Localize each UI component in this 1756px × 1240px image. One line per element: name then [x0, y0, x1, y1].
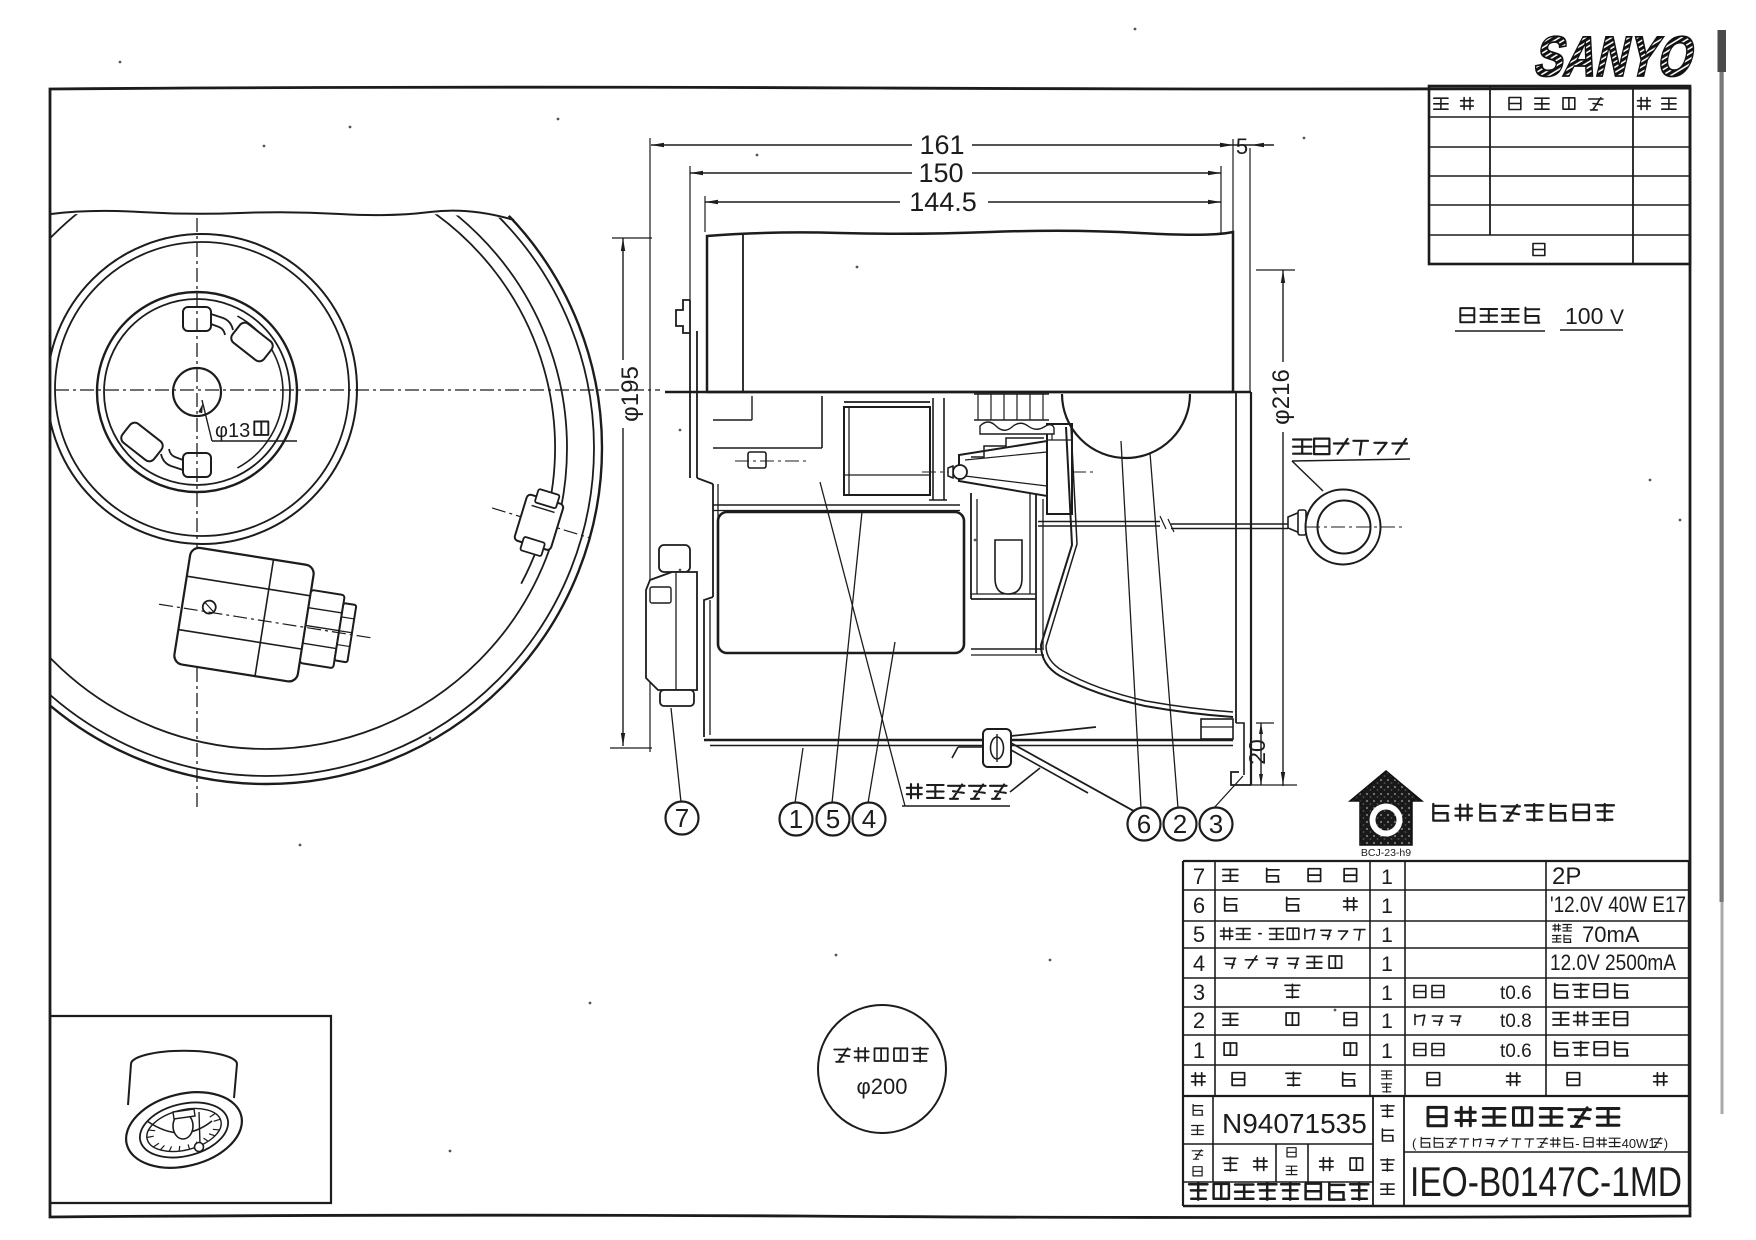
svg-text:20: 20: [1244, 739, 1270, 765]
svg-text:5: 5: [1193, 922, 1205, 947]
svg-text:): ): [1664, 1136, 1668, 1151]
svg-text:2: 2: [1193, 1008, 1205, 1033]
svg-text:φ195: φ195: [617, 366, 644, 422]
svg-text:1: 1: [1381, 895, 1393, 918]
svg-text:12.0V 2500mA: 12.0V 2500mA: [1550, 950, 1676, 975]
svg-text:t0.6: t0.6: [1500, 1041, 1532, 1062]
svg-text:IEO-B0147C-1MD: IEO-B0147C-1MD: [1410, 1158, 1682, 1205]
svg-text:2: 2: [1173, 809, 1187, 839]
svg-text:6: 6: [1193, 893, 1205, 918]
svg-text:t0.8: t0.8: [1500, 1011, 1532, 1032]
svg-text:V: V: [1610, 306, 1624, 329]
svg-text:φ200: φ200: [857, 1074, 908, 1099]
svg-text:100: 100: [1565, 303, 1603, 329]
svg-text:6: 6: [1137, 809, 1151, 839]
svg-text:70mA: 70mA: [1582, 922, 1640, 947]
svg-text:150: 150: [918, 158, 963, 188]
svg-text:2P: 2P: [1552, 863, 1581, 890]
svg-text:1: 1: [1381, 924, 1393, 947]
svg-text:SANYO: SANYO: [1529, 26, 1702, 89]
svg-text:t0.6: t0.6: [1500, 983, 1532, 1004]
svg-text:1: 1: [1381, 866, 1393, 889]
svg-text:5: 5: [1236, 134, 1248, 159]
svg-text:'12.0V 40W E17: '12.0V 40W E17: [1550, 892, 1686, 917]
svg-text:5: 5: [826, 804, 840, 834]
svg-text:N94071535: N94071535: [1222, 1108, 1367, 1139]
svg-text:1: 1: [1193, 1038, 1205, 1063]
svg-text:4: 4: [1193, 951, 1205, 976]
svg-text:1: 1: [1381, 982, 1393, 1005]
svg-text:φ216: φ216: [1268, 369, 1295, 425]
svg-text:1: 1: [1381, 1010, 1393, 1033]
svg-text:3: 3: [1209, 809, 1223, 839]
svg-text:144.5: 144.5: [909, 187, 977, 217]
svg-text:1: 1: [1381, 953, 1393, 976]
svg-text:1: 1: [1381, 1040, 1393, 1063]
svg-text:4: 4: [862, 804, 876, 834]
svg-text:161: 161: [919, 130, 964, 160]
svg-text:7: 7: [675, 803, 689, 833]
svg-text:-: -: [1575, 1136, 1579, 1151]
svg-text:7: 7: [1193, 864, 1205, 889]
svg-text:1: 1: [789, 804, 803, 834]
svg-text:40W1: 40W1: [1622, 1136, 1656, 1151]
svg-text:φ13: φ13: [215, 420, 250, 442]
svg-text:BCJ-23-h9: BCJ-23-h9: [1361, 847, 1411, 859]
svg-text:(: (: [1412, 1136, 1417, 1151]
svg-text:3: 3: [1193, 980, 1205, 1005]
